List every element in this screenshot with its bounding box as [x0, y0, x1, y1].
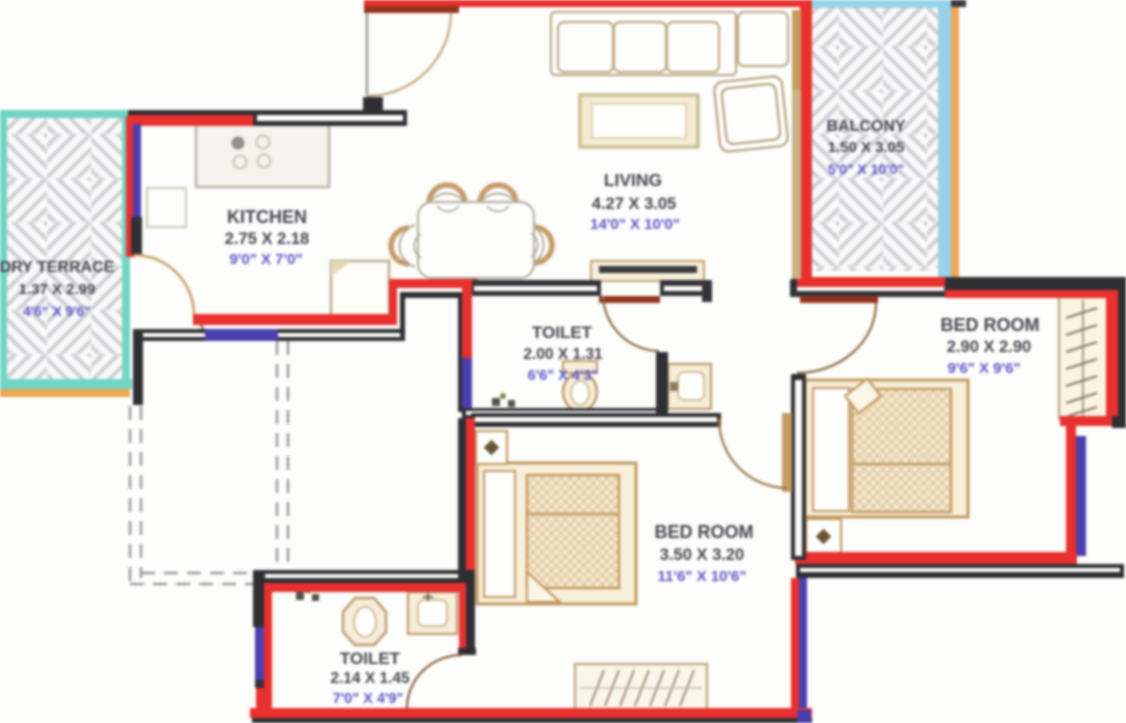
svg-text:KITCHEN: KITCHEN — [227, 207, 307, 227]
svg-text:2.00 X 1.31: 2.00 X 1.31 — [523, 346, 603, 363]
svg-text:5'0" X 10'0": 5'0" X 10'0" — [828, 161, 904, 177]
svg-text:BALCONY: BALCONY — [826, 118, 905, 135]
svg-text:3.50 X 3.20: 3.50 X 3.20 — [660, 546, 744, 564]
svg-text:6'6" X 4'3": 6'6" X 4'3" — [528, 368, 599, 384]
svg-text:4'6" X 9'6": 4'6" X 9'6" — [23, 303, 91, 319]
svg-text:2.14 X 1.45: 2.14 X 1.45 — [330, 670, 410, 687]
svg-text:2.90 X 2.90: 2.90 X 2.90 — [947, 338, 1031, 356]
svg-text:7'0" X 4'9": 7'0" X 4'9" — [333, 691, 404, 707]
svg-text:9'6" X 9'6": 9'6" X 9'6" — [947, 360, 1020, 377]
svg-text:TOILET: TOILET — [340, 649, 401, 668]
svg-text:1.50 X 3.05: 1.50 X 3.05 — [828, 139, 905, 156]
svg-text:4.27 X 3.05: 4.27 X 3.05 — [592, 195, 676, 213]
svg-text:1.37 X 2.99: 1.37 X 2.99 — [19, 281, 96, 298]
svg-text:BED ROOM: BED ROOM — [655, 522, 754, 542]
svg-text:DRY TERRACE: DRY TERRACE — [0, 259, 115, 276]
svg-text:2.75 X 2.18: 2.75 X 2.18 — [225, 230, 309, 248]
svg-text:BED ROOM: BED ROOM — [941, 315, 1040, 335]
svg-text:14'0" X 10'0": 14'0" X 10'0" — [590, 216, 680, 233]
svg-text:9'0" X 7'0": 9'0" X 7'0" — [229, 251, 302, 268]
svg-text:LIVING: LIVING — [604, 170, 662, 190]
svg-text:11'6" X 10'6": 11'6" X 10'6" — [658, 568, 747, 585]
svg-text:TOILET: TOILET — [532, 323, 593, 342]
